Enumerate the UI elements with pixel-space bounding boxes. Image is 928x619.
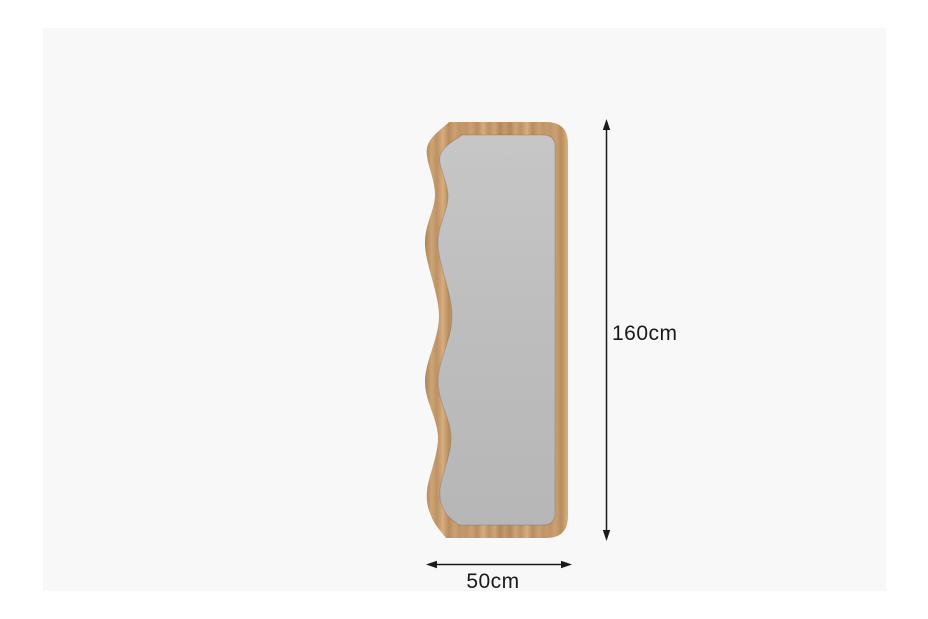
image-canvas: 160cm 50cm [43, 28, 886, 591]
height-dimension-label: 160cm [612, 323, 678, 344]
mirror-glass [438, 135, 555, 525]
arrowhead-down-icon [603, 530, 610, 541]
width-dimension-label: 50cm [443, 571, 543, 592]
arrowhead-up-icon [603, 119, 610, 130]
wavy-mirror-illustration [421, 122, 568, 538]
arrowhead-left-icon [426, 561, 437, 568]
arrowhead-right-icon [561, 561, 572, 568]
product-dimension-image: { "page": { "background": "#ffffff", "ca… [0, 0, 928, 619]
